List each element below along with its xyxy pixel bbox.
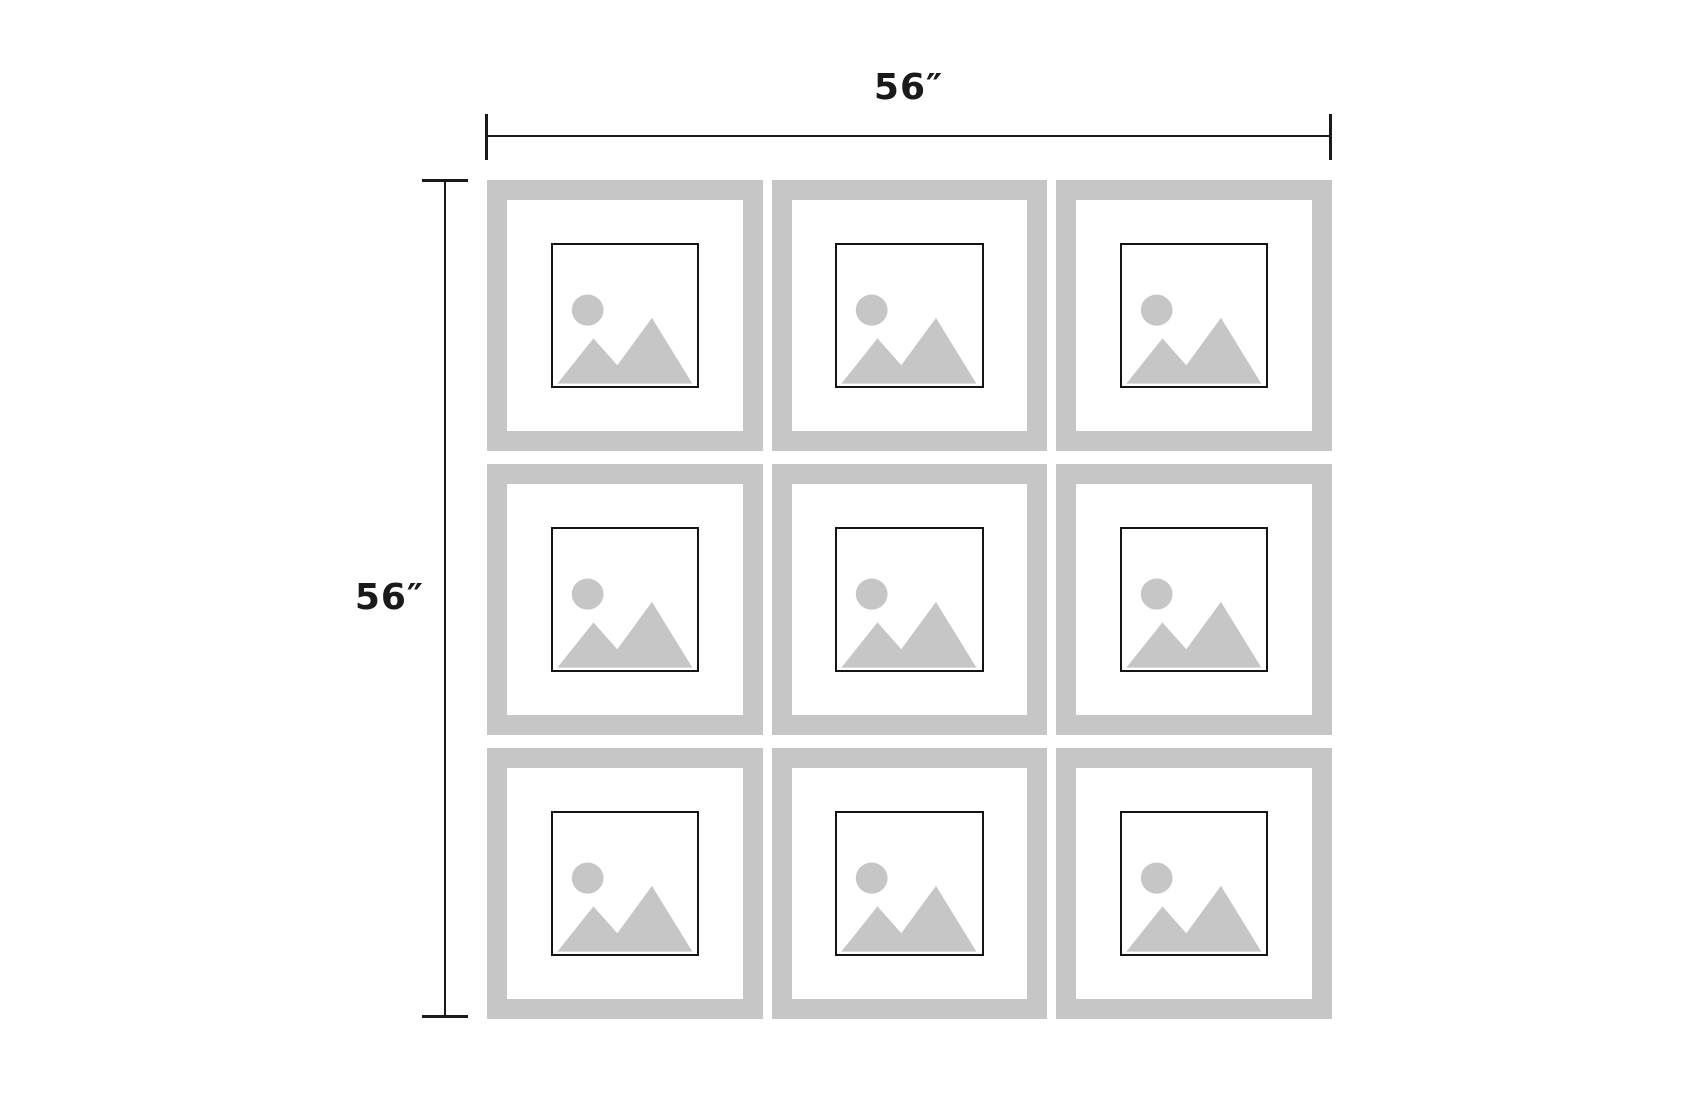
sun-shape: [856, 294, 888, 325]
image-placeholder-icon: [553, 813, 697, 955]
image-placeholder-icon: [837, 813, 981, 955]
image-placeholder-icon: [553, 529, 697, 671]
image-placeholder-icon: [1122, 529, 1266, 671]
mountains-shape: [557, 602, 692, 668]
sun-shape: [571, 862, 603, 893]
photo-mat: [551, 243, 699, 389]
image-placeholder-icon: [1122, 813, 1266, 955]
image-placeholder-icon: [553, 245, 697, 387]
height-dimension-tick-start: [422, 179, 468, 182]
photo-mat: [1120, 243, 1268, 389]
picture-frame-8: [772, 748, 1048, 1019]
sun-shape: [571, 578, 603, 609]
sun-shape: [856, 578, 888, 609]
picture-frame-4: [487, 464, 763, 735]
image-placeholder-icon: [837, 245, 981, 387]
picture-frame-5: [772, 464, 1048, 735]
height-dimension-label: 56″: [284, 578, 424, 618]
image-placeholder-icon: [837, 529, 981, 671]
sun-shape: [1141, 578, 1173, 609]
picture-frame-3: [1056, 180, 1332, 451]
picture-frame-9: [1056, 748, 1332, 1019]
sun-shape: [1141, 862, 1173, 893]
photo-mat: [1120, 527, 1268, 673]
sun-shape: [856, 862, 888, 893]
frame-grid: [487, 180, 1332, 1019]
height-dimension-tick-end: [422, 1015, 468, 1018]
picture-frame-6: [1056, 464, 1332, 735]
sun-shape: [571, 294, 603, 325]
mountains-shape: [842, 318, 977, 384]
height-dimension-line: [444, 180, 446, 1018]
photo-mat: [551, 527, 699, 673]
mountains-shape: [1126, 602, 1261, 668]
image-placeholder-icon: [1122, 245, 1266, 387]
photo-mat: [551, 811, 699, 957]
photo-mat: [835, 811, 983, 957]
mountains-shape: [557, 886, 692, 952]
width-dimension-label: 56″: [486, 68, 1331, 108]
mountains-shape: [557, 318, 692, 384]
width-dimension-tick-start: [485, 114, 488, 160]
mountains-shape: [842, 886, 977, 952]
mountains-shape: [842, 602, 977, 668]
width-dimension-tick-end: [1329, 114, 1332, 160]
picture-frame-7: [487, 748, 763, 1019]
sun-shape: [1141, 294, 1173, 325]
width-dimension-line: [486, 135, 1331, 137]
mountains-shape: [1126, 318, 1261, 384]
picture-frame-1: [487, 180, 763, 451]
photo-mat: [835, 243, 983, 389]
mountains-shape: [1126, 886, 1261, 952]
gallery-wall-diagram: 56″ 56″: [0, 0, 1700, 1100]
picture-frame-2: [772, 180, 1048, 451]
photo-mat: [835, 527, 983, 673]
photo-mat: [1120, 811, 1268, 957]
